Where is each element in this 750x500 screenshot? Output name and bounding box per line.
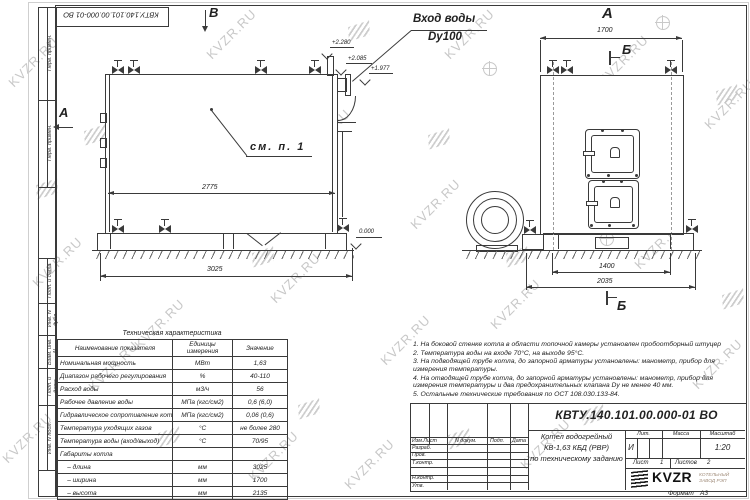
inlet-callout-line2: Dy100	[428, 32, 462, 44]
duct-valve-icon	[524, 219, 536, 234]
title-block-line	[410, 452, 528, 453]
spec-table-cell: – ширина	[58, 474, 173, 487]
dim-line-3025	[100, 276, 352, 277]
drawing-sheet: KVZR.RU KVZR.RU KVZR.RU KVZR.RU KVZR.RU …	[0, 0, 750, 500]
row-label-tkontr: Т.контр.	[412, 461, 433, 466]
view-B-arrowhead	[202, 26, 208, 32]
strip-line	[38, 368, 55, 369]
dim-ext-line	[540, 40, 541, 72]
doc-title-line3: по техническому заданию	[530, 455, 623, 463]
strip-line	[38, 303, 55, 304]
strip-label-inv-podl: Инв. N подл.	[47, 407, 55, 468]
note-1: 1. На боковой стенке котла в области топ…	[413, 341, 744, 349]
company-logo-icon	[631, 470, 648, 488]
strip-line	[38, 405, 55, 406]
spec-table-cell: МПа (кгс/см2)	[173, 396, 233, 409]
dim-line-2775	[108, 193, 335, 194]
dim-line-1400	[552, 272, 670, 273]
note-2: 2. Температура воды на входе 70°С, на вы…	[413, 350, 744, 358]
base-support-line	[325, 233, 326, 249]
dim-ext-line	[352, 248, 353, 281]
spec-table-cell: Температура воды (вход/выход)	[58, 435, 173, 448]
door-bolts	[602, 180, 605, 183]
sheets-label: Листов	[675, 460, 697, 466]
base-center-box	[595, 237, 629, 249]
centerline-dashed	[671, 62, 672, 250]
spec-table-cell: МПа (кгс/см2)	[173, 409, 233, 422]
spec-table-row: Расход водым3/ч56	[58, 383, 288, 396]
row-label-utv: Утв.	[412, 484, 424, 489]
strip-label-podp-data-2: Подп. и дата	[47, 370, 55, 403]
spec-table-cell: Диапазон рабочего регулирования	[58, 370, 173, 383]
sheet-label: Лист	[633, 460, 648, 466]
base-support-line	[670, 233, 671, 249]
safety-valve-icon	[309, 59, 321, 74]
elevation-label: 0.000	[359, 229, 374, 235]
company-subtitle-line1: КОТЕЛЬНЫЙ	[699, 473, 729, 479]
section-B-tick	[606, 291, 608, 305]
base-support-line	[110, 233, 111, 249]
masshtab-header: Масштаб	[700, 432, 745, 438]
boiler-inner-wall-line	[332, 74, 333, 232]
title-block-line	[625, 458, 745, 459]
dim-line-2035	[526, 287, 695, 288]
spec-table-row: – ширинамм1700	[58, 474, 288, 487]
safety-valve-icon	[128, 59, 140, 74]
lower-furnace-door	[588, 180, 639, 229]
spec-table-cell: 2135	[233, 487, 288, 500]
spec-table-cell: Рабочее давление воды	[58, 396, 173, 409]
view-A-arrow-line	[58, 127, 73, 128]
spec-table-row: Гидравлическое сопротивление котлаМПа (к…	[58, 409, 288, 422]
spec-table-cell	[233, 448, 288, 461]
strip-line	[38, 100, 55, 101]
strip-line	[38, 258, 55, 259]
dim-label-1700: 1700	[597, 27, 613, 34]
door-bolts	[601, 129, 604, 132]
spec-table-cell: МВт	[173, 357, 233, 370]
spec-table-cell: 1700	[233, 474, 288, 487]
outlet-stub	[327, 56, 334, 76]
col-header-izm-list: Изм.Лист	[412, 439, 437, 444]
spec-table-cell: Габариты котла	[58, 448, 173, 461]
spec-table-cell: 70/95	[233, 435, 288, 448]
view-A-arrowhead	[53, 124, 59, 130]
massa-header: Масса	[662, 432, 700, 438]
spec-table-cell: – высота	[58, 487, 173, 500]
elevation-label: +2.280	[332, 40, 351, 46]
section-B-label-top: Б	[622, 43, 631, 56]
elevation-label: +1.977	[371, 66, 390, 72]
elevation-underline	[356, 237, 382, 238]
base-support-line	[233, 233, 234, 249]
spec-table-cell: Расход воды	[58, 383, 173, 396]
company-subtitle-line2: ЗАВОД РЭП	[699, 479, 729, 485]
strip-label-vzam-inv: Взам. инв. N	[47, 337, 55, 366]
title-block-line	[649, 438, 650, 458]
lit-header: Лит.	[625, 432, 662, 438]
door-lock-icon	[610, 147, 620, 158]
safety-valve-icon	[255, 59, 267, 74]
spec-table-cell: 1,63	[233, 357, 288, 370]
spec-table-row: – высотамм2135	[58, 487, 288, 500]
doc-title-line2: КВ-1,63 КБД (РВР)	[530, 444, 623, 452]
side-fitting	[100, 138, 107, 148]
boiler-body-outline	[105, 74, 338, 234]
col-header-data: Дата	[512, 439, 526, 444]
spec-table-cell: %	[173, 370, 233, 383]
spec-table-cell: Гидравлическое сопротивление котла	[58, 409, 173, 422]
spec-table: Наименование показателя Единицы измерени…	[57, 339, 288, 500]
spec-table-row: Номинальная мощностьМВт1,63	[58, 357, 288, 370]
title-block-line	[410, 467, 528, 468]
elevation-label: +2.085	[348, 56, 367, 62]
spec-table-cell: 3025	[233, 461, 288, 474]
notes-block: 1. На боковой стенке котла в области топ…	[413, 341, 744, 400]
dim-ext-line	[695, 253, 696, 290]
elevation-underline	[346, 63, 372, 64]
strip-label-perv-primen: Перв. примен.	[47, 10, 55, 96]
strip-line	[38, 335, 55, 336]
row-label-prov: Пров.	[412, 453, 426, 458]
drain-pipe-line	[342, 131, 343, 217]
side-fitting	[100, 158, 107, 168]
note-4: 4. На отводящей трубе котла, до запорной…	[413, 375, 744, 390]
spec-table-cell: Номинальная мощность	[58, 357, 173, 370]
lit-value: И	[625, 444, 637, 452]
col-header-ndoc: N докум.	[455, 439, 476, 444]
base-support-line	[223, 233, 224, 249]
document-designation: КВТУ.140.101.00.000-01 ВО	[528, 409, 745, 421]
title-block-line	[447, 403, 448, 490]
strip-line	[38, 470, 55, 471]
spec-table-cell	[173, 448, 233, 461]
spec-header-value: Значение	[233, 340, 288, 357]
title-block-line	[670, 458, 671, 468]
view-B-arrow-line	[205, 10, 206, 26]
safety-valve-icon	[547, 59, 559, 74]
spec-table-cell: м3/ч	[173, 383, 233, 396]
spec-header-name: Наименование показателя	[58, 340, 173, 357]
spec-table-row: Рабочее давление водыМПа (кгс/см2)0,6 (6…	[58, 396, 288, 409]
spec-table-row: Температура воды (вход/выход)°С70/95	[58, 435, 288, 448]
safety-valve-icon	[561, 59, 573, 74]
title-block-line	[487, 403, 488, 490]
spec-table-cell: 0,06 (0,6)	[233, 409, 288, 422]
spec-table-header-row: Наименование показателя Единицы измерени…	[58, 340, 288, 357]
fan-inlet-circle	[481, 206, 509, 234]
centerline-dashed	[553, 62, 554, 250]
spec-table-row: Диапазон рабочего регулирования%40-110	[58, 370, 288, 383]
title-block-line	[625, 430, 626, 490]
base-support-line	[558, 233, 559, 249]
dim-label-2775: 2775	[202, 184, 218, 191]
door-lock-icon	[610, 197, 620, 208]
bracket-line	[338, 131, 352, 132]
door-handle	[586, 201, 598, 206]
spec-table-body: Номинальная мощностьМВт1,63Диапазон рабо…	[58, 357, 288, 500]
dim-line-1700	[540, 38, 682, 39]
spec-table-row: Температура уходящих газов°Сне более 280	[58, 422, 288, 435]
fan-duct	[522, 234, 544, 250]
company-name: KVZR	[652, 470, 692, 484]
strip-label-inv-dubl: Инв. N дубл.	[47, 305, 55, 333]
drain-valve-icon	[112, 218, 124, 233]
spec-table-cell: 56	[233, 383, 288, 396]
inlet-callout-line1: Вход воды	[413, 14, 475, 26]
spec-table-cell: мм	[173, 461, 233, 474]
section-B-tick-line	[608, 297, 617, 298]
elevation-underline	[330, 47, 354, 48]
dim-ext-line	[682, 40, 683, 72]
ground-hatch-right	[462, 250, 702, 259]
company-subtitle: КОТЕЛЬНЫЙ ЗАВОД РЭП	[699, 473, 729, 484]
sheets-value: 2	[707, 460, 710, 466]
section-B-label-bottom: Б	[617, 299, 626, 312]
drain-valve-icon	[686, 218, 698, 233]
spec-table-cell: °С	[173, 435, 233, 448]
door-handle	[583, 151, 595, 156]
drain-valve-icon	[337, 217, 349, 232]
safety-valve-icon	[112, 59, 124, 74]
dim-ext-line	[670, 253, 671, 275]
spec-table-cell: мм	[173, 474, 233, 487]
bracket-line	[338, 122, 356, 123]
spec-table-cell: 0,6 (6,0)	[233, 396, 288, 409]
base-frame-outline	[97, 233, 347, 251]
sheet-value: 1	[660, 460, 663, 466]
scale-value: 1:20	[700, 444, 745, 452]
dim-label-1400: 1400	[599, 263, 615, 270]
see-note-label: см. п. 1	[250, 142, 305, 153]
dim-label-2035: 2035	[597, 278, 613, 285]
spec-table-title: Техническая характеристика	[57, 330, 287, 337]
section-B-tick-line	[611, 57, 620, 58]
row-label-nkontr: Н.контр.	[412, 476, 434, 481]
title-block-line	[410, 482, 528, 483]
strip-label-perv-primen-2: Перв. примен.	[47, 103, 55, 183]
title-block-line	[510, 403, 511, 490]
col-header-podp: Подп.	[490, 439, 504, 444]
note-3: 3. На подводящей трубе котла, до запорно…	[413, 358, 744, 373]
boiler-inner-wall-line	[109, 74, 110, 232]
view-marker-A: А	[59, 106, 68, 119]
spec-table-cell: мм	[173, 487, 233, 500]
title-block-line	[637, 438, 638, 458]
doc-title-line1: Котел водогрейный	[530, 433, 623, 441]
spec-table-cell: 40-110	[233, 370, 288, 383]
inlet-callout-underline	[411, 30, 487, 31]
strip-label-podp-data: Подп. и дата	[47, 260, 55, 301]
side-fitting	[100, 113, 107, 123]
inlet-flange	[345, 74, 351, 96]
upper-furnace-door	[585, 129, 640, 179]
top-stamp-designation: КВТУ.140.101.00.000-01 ВО	[57, 11, 165, 19]
row-label-razrab: Разраб.	[412, 446, 431, 451]
spec-table-cell: Температура уходящих газов	[58, 422, 173, 435]
view-marker-B: В	[209, 6, 218, 19]
format-value: А3	[700, 491, 708, 498]
callout-underline	[246, 156, 312, 157]
format-label: Формат	[668, 491, 694, 498]
ground-hatch-left	[92, 250, 354, 259]
drain-valve-icon	[159, 218, 171, 233]
spec-table-row: – длинамм3025	[58, 461, 288, 474]
spec-table-row: Габариты котла	[58, 448, 288, 461]
safety-valve-icon	[665, 59, 677, 74]
spec-table-cell: °С	[173, 422, 233, 435]
dim-label-3025: 3025	[207, 266, 223, 273]
elevation-underline	[369, 73, 393, 74]
note-5: 5. Остальные технические требования по О…	[413, 391, 744, 399]
spec-header-units: Единицы измерения	[173, 340, 233, 357]
title-block-line	[625, 438, 745, 439]
view-A-label: А	[602, 6, 613, 21]
section-B-tick	[609, 51, 611, 65]
spec-table-cell: – длина	[58, 461, 173, 474]
strip-line	[38, 187, 55, 188]
spec-table-cell: не более 280	[233, 422, 288, 435]
